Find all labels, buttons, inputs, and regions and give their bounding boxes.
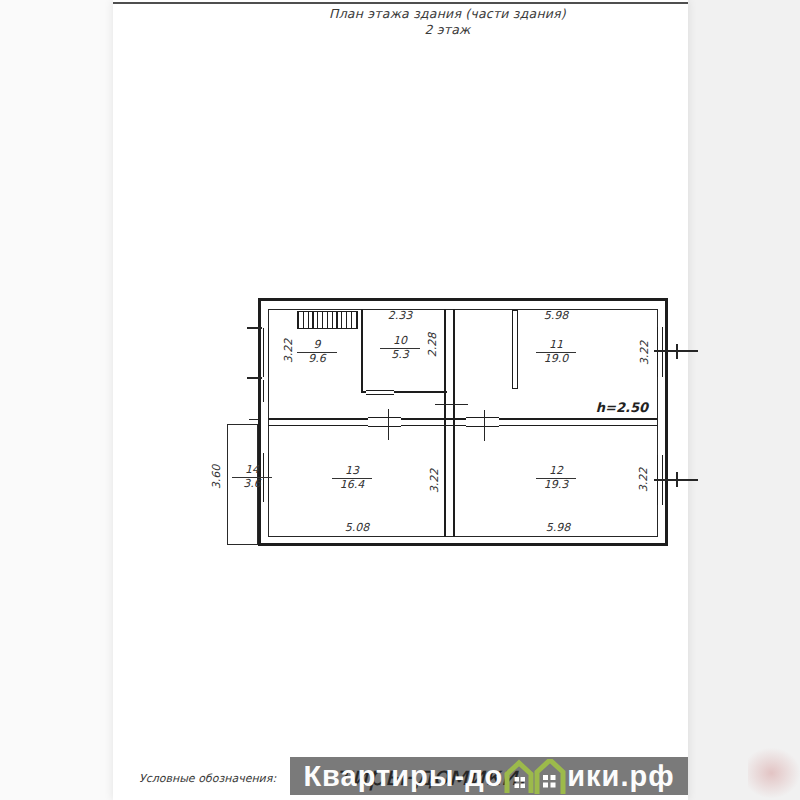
door-axis-tick-corridor	[435, 404, 468, 406]
room-number: 14	[232, 464, 272, 478]
room-area: 19.0	[536, 353, 576, 366]
dim-balcony-height: 3.60	[210, 454, 224, 500]
watermark-text: Квартиры-до ики.рф	[290, 757, 688, 795]
dim-tick-left-mid	[249, 419, 258, 420]
wall-outer-right	[665, 298, 668, 546]
wall-outer-top	[258, 298, 668, 301]
wall-middle-bottom-1	[268, 425, 368, 427]
wall-central-left-line	[444, 309, 446, 537]
page-subtitle: 2 этаж	[160, 22, 735, 37]
dim-room11-height: 3.22	[638, 330, 652, 376]
wall-middle-top-1	[268, 418, 368, 420]
dim-room11-width: 5.98	[534, 309, 578, 322]
page-title: План этажа здания (части здания)	[160, 6, 735, 21]
dim-room10-width: 2.33	[378, 309, 422, 322]
wall-room10-left	[361, 309, 363, 393]
stairs-hatch	[297, 311, 358, 329]
door-opening-1	[368, 417, 401, 427]
houses-icon	[504, 759, 566, 794]
room-number: 12	[536, 465, 576, 479]
room-label-10: 10 5.3	[380, 335, 420, 362]
wall-outer-left	[258, 298, 261, 546]
scan-artifact	[748, 748, 800, 798]
scan-margin-left	[0, 0, 113, 800]
window-symbol-left-2	[263, 380, 270, 402]
legend-label: Условные обозначения:	[139, 772, 276, 785]
dim-tick-left-2	[247, 377, 262, 378]
window-symbol-right-1	[657, 327, 664, 377]
dim-dash-right-top	[676, 344, 678, 359]
room-number: 9	[297, 339, 337, 353]
wall-inner-bottom	[268, 536, 658, 537]
window-symbol-left-1	[263, 328, 270, 377]
room-area: 9.6	[297, 353, 337, 366]
room-label-14: 14 3.6	[232, 464, 272, 491]
dim-room12-height: 3.22	[637, 457, 651, 503]
room-area: 16.4	[332, 479, 372, 492]
room-number: 11	[536, 339, 576, 353]
partition-room11	[512, 310, 518, 389]
page-top-border	[113, 2, 688, 4]
room-area: 3.6	[232, 478, 272, 491]
wall-outer-bottom	[258, 543, 668, 546]
wall-middle-bottom-3	[499, 425, 657, 427]
dim-tick-left-1	[247, 327, 262, 328]
dim-room12-width: 5.98	[536, 521, 580, 534]
dim-room13-width: 5.08	[335, 521, 379, 534]
room-label-9: 9 9.6	[297, 339, 337, 366]
dim-dash-right-bottom	[676, 472, 678, 487]
door-opening-2	[466, 417, 499, 427]
room-area: 5.3	[380, 349, 420, 362]
dim-room13-height: 3.22	[428, 458, 442, 504]
wall-middle-top-3	[499, 418, 657, 420]
dim-left-wall: 3.22	[282, 328, 296, 374]
door-axis-tick-1	[388, 409, 390, 440]
room-label-11: 11 19.0	[536, 339, 576, 366]
watermark-text-right: ики.рф	[567, 760, 674, 793]
door-axis-tick-2	[484, 410, 486, 441]
room-number: 13	[332, 465, 372, 479]
watermark-text-left: Квартиры-до	[303, 760, 503, 793]
wall-middle-top-2	[401, 418, 466, 420]
dim-room10-height: 2.28	[426, 322, 440, 368]
door-opening-room10	[366, 390, 394, 395]
wall-middle-bottom-2	[401, 425, 466, 427]
ceiling-height-note: h=2.50	[582, 400, 648, 415]
room-label-12: 12 19.3	[536, 465, 576, 492]
room-number: 10	[380, 335, 420, 349]
room-area: 19.3	[536, 479, 576, 492]
wall-central-right-line	[453, 309, 455, 537]
room-label-13: 13 16.4	[332, 465, 372, 492]
